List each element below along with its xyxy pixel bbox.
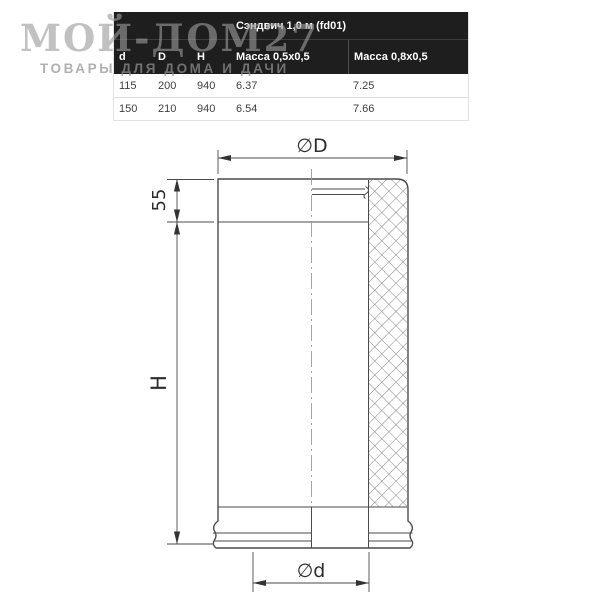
col-header-H: H (192, 40, 231, 74)
arrow-left (218, 155, 231, 161)
col-header-mass-08: Масса 0,8x0,5 (348, 40, 468, 74)
arrow-right (356, 580, 369, 586)
col-header-mass-05: Масса 0,5x0,5 (231, 40, 348, 74)
cell-mass-05: 6.54 (231, 98, 348, 120)
seam-break-curve (364, 187, 369, 199)
table-row: 150 210 940 6.54 7.66 (114, 97, 468, 120)
table-row: 115 200 940 6.37 7.25 (114, 74, 468, 97)
cell-d: 115 (114, 74, 153, 97)
cell-mass-08: 7.25 (348, 74, 468, 97)
insulation-hatch (369, 180, 408, 507)
dim-collar-height (167, 179, 214, 222)
dim-height (167, 222, 214, 544)
product-image: МОЙ-ДОМ27 ТОВАРЫ ДЛЯ ДОМА И ДАЧИ Сэндвич… (0, 0, 600, 600)
col-header-d: d (114, 40, 153, 74)
arrow-down (174, 532, 180, 545)
height-label: H (147, 375, 171, 391)
pipe-body (213, 179, 413, 548)
spec-table-title: Сэндвич 1,0 м (fd01) (114, 12, 468, 40)
cell-mass-05: 6.37 (231, 74, 348, 97)
cell-D: 210 (153, 98, 192, 120)
spec-table-header: d D H Масса 0,5x0,5 Масса 0,8x0,5 (114, 40, 468, 74)
inner-diameter-label: ∅d (297, 560, 326, 582)
arrow-left (253, 580, 266, 586)
cell-H: 940 (192, 74, 231, 97)
collar-height-label: 55 (149, 189, 170, 212)
col-header-D: D (153, 40, 192, 74)
cell-d: 150 (114, 98, 153, 120)
arrow-up (174, 222, 180, 235)
cell-H: 940 (192, 98, 231, 120)
arrow-down (174, 210, 180, 223)
cell-D: 200 (153, 74, 192, 97)
arrow-right (394, 155, 407, 161)
outer-diameter-label: ∅D (296, 135, 327, 157)
cell-mass-08: 7.66 (348, 98, 468, 120)
spec-table: Сэндвич 1,0 м (fd01) d D H Масса 0,5x0,5… (113, 12, 469, 121)
arrow-up (174, 179, 180, 192)
